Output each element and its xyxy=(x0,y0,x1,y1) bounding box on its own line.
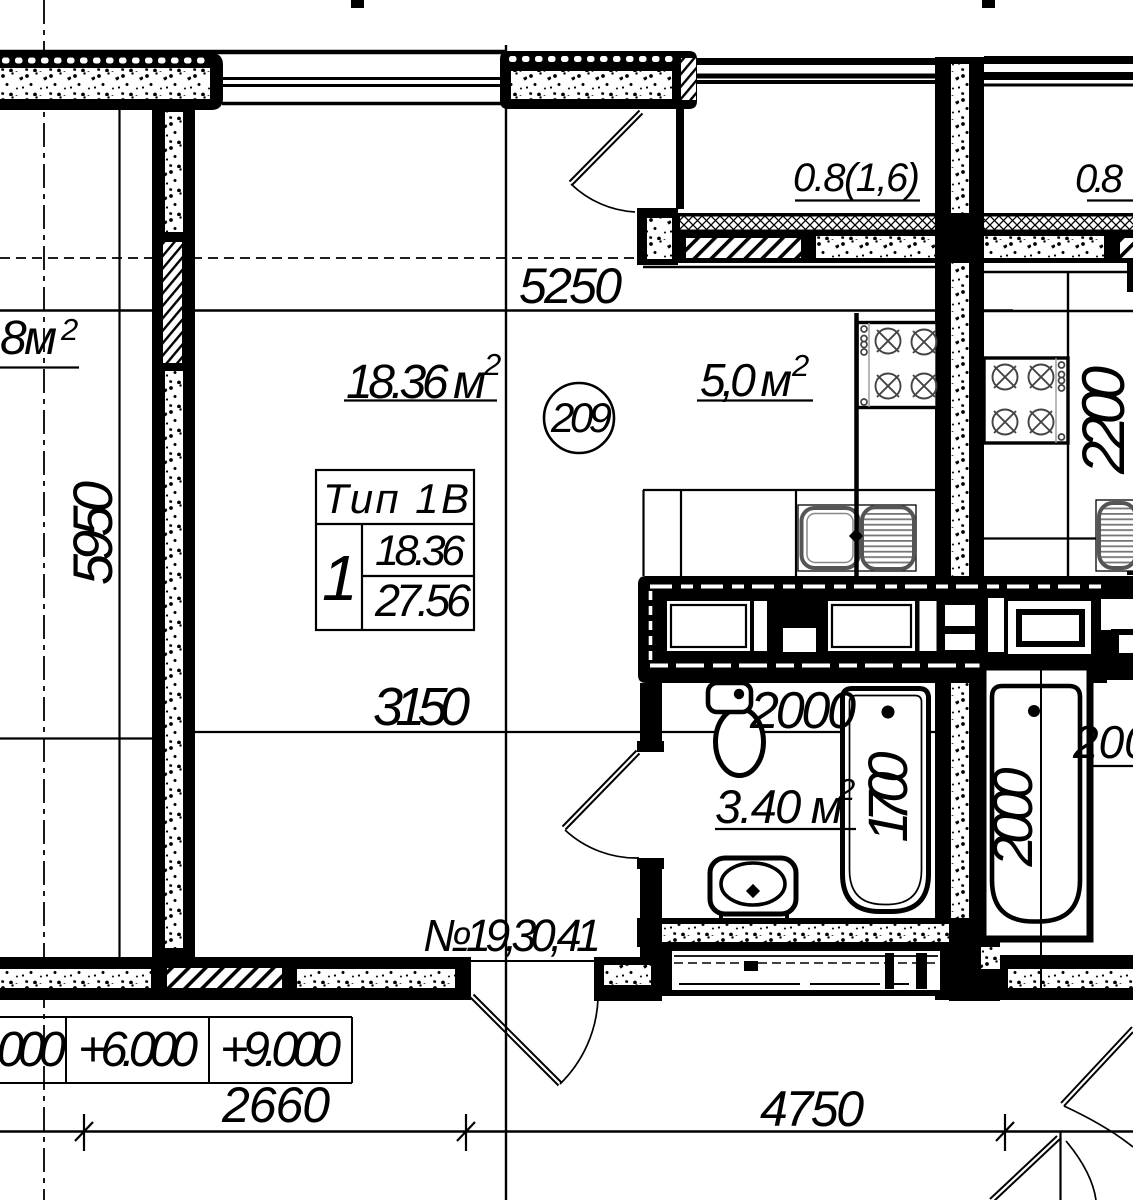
svg-text:4750: 4750 xyxy=(760,1081,864,1137)
svg-text:8 м: 8 м xyxy=(0,312,57,365)
svg-text:2200: 2200 xyxy=(1070,366,1133,475)
svg-text:1: 1 xyxy=(322,542,358,614)
svg-text:2000: 2000 xyxy=(1072,716,1133,768)
svg-text:№19,30,41: №19,30,41 xyxy=(423,910,601,961)
svg-text:2000: 2000 xyxy=(749,682,856,740)
svg-text:27.56: 27.56 xyxy=(374,575,472,626)
svg-text:2660: 2660 xyxy=(221,1077,330,1133)
svg-text:18.36 м: 18.36 м xyxy=(346,356,486,409)
svg-text:+6.000: +6.000 xyxy=(78,1023,198,1077)
svg-text:2: 2 xyxy=(60,312,78,347)
svg-text:5250: 5250 xyxy=(519,258,622,314)
svg-text:5,0 м: 5,0 м xyxy=(700,354,792,406)
svg-text:1700: 1700 xyxy=(856,752,919,843)
svg-text:0.8: 0.8 xyxy=(1075,157,1124,201)
svg-text:2000: 2000 xyxy=(981,768,1044,868)
svg-text:2: 2 xyxy=(483,347,501,382)
svg-text:18.36: 18.36 xyxy=(375,527,465,575)
svg-text:2: 2 xyxy=(837,772,855,807)
svg-text:3.40 м: 3.40 м xyxy=(715,780,843,833)
svg-text:3150: 3150 xyxy=(373,677,470,737)
svg-text:2: 2 xyxy=(791,348,809,383)
svg-text:+9.000: +9.000 xyxy=(220,1023,341,1077)
svg-text:0.8(1,6): 0.8(1,6) xyxy=(793,156,920,200)
svg-text:Тип 1В: Тип 1В xyxy=(323,475,469,522)
svg-text:+3.000: +3.000 xyxy=(0,1023,66,1077)
svg-text:5950: 5950 xyxy=(61,481,124,585)
svg-text:209: 209 xyxy=(550,394,612,441)
